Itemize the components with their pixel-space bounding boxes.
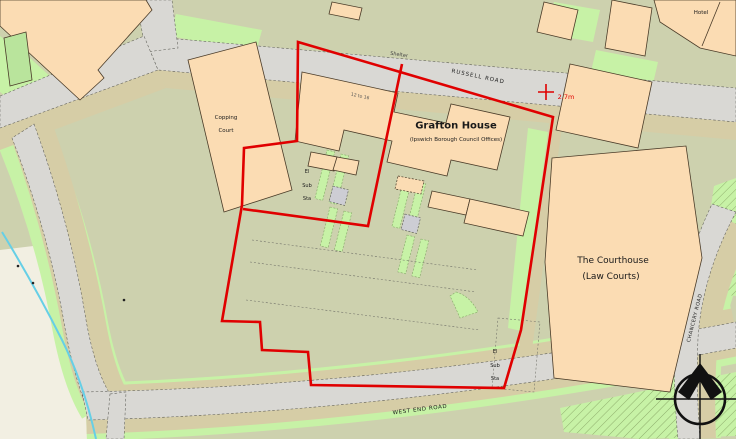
building-courthouse — [545, 146, 702, 392]
map-canvas — [0, 0, 736, 439]
map-viewport[interactable]: Grafton House (Ipswich Borough Council O… — [0, 0, 736, 439]
